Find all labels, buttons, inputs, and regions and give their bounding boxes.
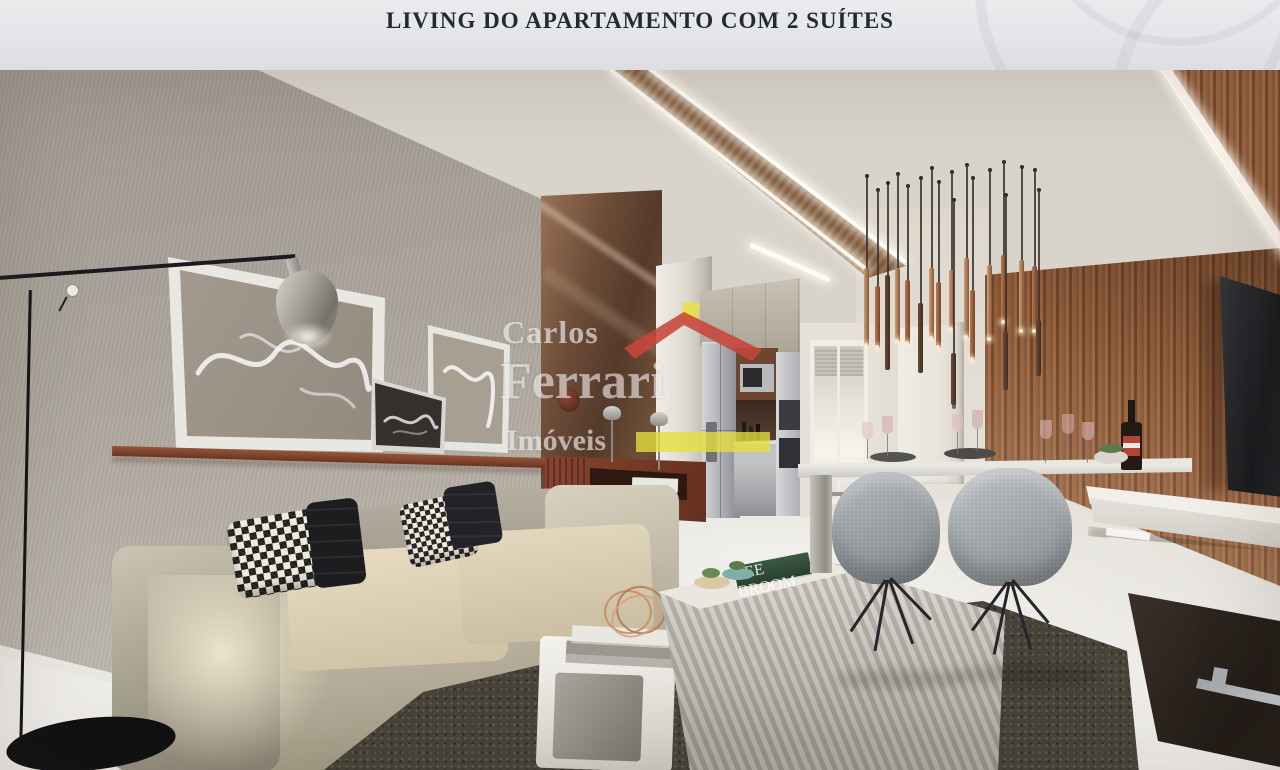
watermark-imoveis: Imóveis <box>506 426 606 456</box>
microwave-window <box>743 368 762 387</box>
wine-glass <box>1082 422 1094 466</box>
door-handle <box>952 400 956 409</box>
page: LIVING DO APARTAMENTO COM 2 SUÍTES <box>0 0 1280 770</box>
succulent <box>702 568 720 578</box>
copper-wire-sculpture <box>600 586 666 638</box>
oven-tower <box>776 352 803 516</box>
wine-glass <box>862 422 873 464</box>
tv-screen <box>1220 270 1280 502</box>
chair-shadow <box>950 665 1100 685</box>
wine-glass <box>882 416 893 460</box>
oven-door <box>779 400 800 430</box>
salad-greens <box>1099 444 1123 453</box>
dinner-plate <box>870 452 916 462</box>
oven-door <box>779 438 800 468</box>
watermark-bar <box>636 432 770 452</box>
apartment-photo: LEE BROOM <box>0 70 1280 770</box>
wine-bottle <box>1121 422 1142 470</box>
black-pillow <box>305 497 367 589</box>
wine-glass <box>1062 414 1074 462</box>
wine-glass <box>972 410 983 456</box>
floor-lamp-knob <box>66 284 79 297</box>
wine-glass <box>952 414 963 458</box>
page-title: LIVING DO APARTAMENTO COM 2 SUÍTES <box>0 8 1280 34</box>
header-band: LIVING DO APARTAMENTO COM 2 SUÍTES <box>0 0 1280 70</box>
desk-lamp-shade <box>650 412 668 426</box>
dining-chair <box>832 472 940 584</box>
floor-lamp-glow <box>282 322 334 352</box>
chair-shadow <box>835 670 965 688</box>
black-pillow <box>442 480 503 549</box>
wine-glass <box>1040 420 1052 466</box>
succulent <box>729 561 745 570</box>
dining-table-leg <box>810 475 832 573</box>
watermark-ferrari: Ferrari <box>500 356 665 408</box>
dining-chair <box>948 468 1072 586</box>
coffee-table-opening <box>553 672 644 761</box>
desk-lamp <box>611 416 613 462</box>
watermark-carlos: Carlos <box>502 316 599 348</box>
microwave <box>740 364 774 392</box>
